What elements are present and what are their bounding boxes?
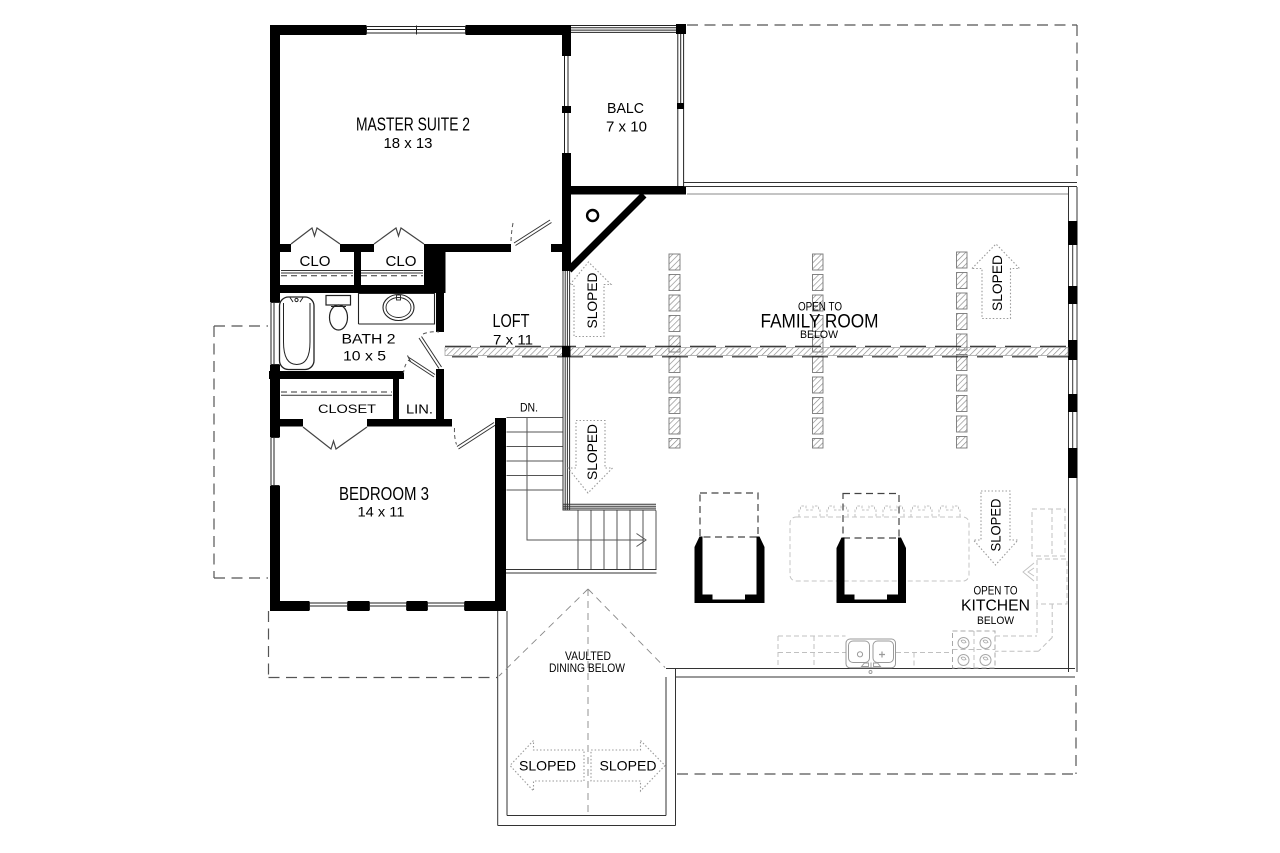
svg-text:MASTER SUITE 2: MASTER SUITE 2 bbox=[356, 115, 470, 135]
svg-text:OPEN TO: OPEN TO bbox=[974, 584, 1018, 598]
svg-text:BATH 2: BATH 2 bbox=[342, 331, 396, 347]
svg-text:7 x 11: 7 x 11 bbox=[493, 332, 533, 348]
svg-text:DINING BELOW: DINING BELOW bbox=[549, 661, 626, 675]
svg-text:CLOSET: CLOSET bbox=[318, 402, 377, 416]
svg-text:SLOPED: SLOPED bbox=[584, 424, 600, 480]
svg-text:BALC: BALC bbox=[607, 100, 644, 117]
svg-text:CLO: CLO bbox=[300, 253, 331, 270]
svg-text:BELOW: BELOW bbox=[800, 329, 839, 341]
svg-text:BEDROOM 3: BEDROOM 3 bbox=[339, 484, 429, 504]
svg-text:DN.: DN. bbox=[520, 401, 538, 415]
svg-text:SLOPED: SLOPED bbox=[989, 255, 1005, 311]
svg-text:14 x 11: 14 x 11 bbox=[358, 504, 405, 520]
svg-text:BELOW: BELOW bbox=[977, 615, 1015, 627]
svg-text:SLOPED: SLOPED bbox=[600, 758, 657, 774]
svg-text:18 x 13: 18 x 13 bbox=[384, 135, 433, 152]
svg-text:10 x 5: 10 x 5 bbox=[343, 348, 386, 364]
svg-text:CLO: CLO bbox=[386, 253, 417, 270]
svg-text:LOFT: LOFT bbox=[493, 311, 530, 331]
svg-text:7 x 10: 7 x 10 bbox=[606, 119, 647, 136]
svg-text:SLOPED: SLOPED bbox=[988, 499, 1004, 552]
svg-text:KITCHEN: KITCHEN bbox=[961, 598, 1030, 615]
svg-text:SLOPED: SLOPED bbox=[584, 273, 600, 329]
svg-text:SLOPED: SLOPED bbox=[519, 758, 576, 774]
svg-text:LIN.: LIN. bbox=[406, 402, 433, 417]
